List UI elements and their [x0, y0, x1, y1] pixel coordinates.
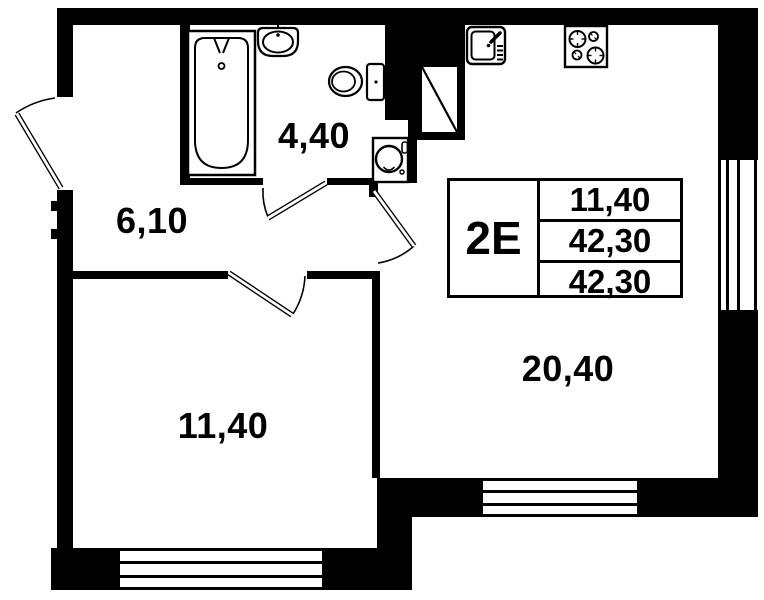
spec-value-row-2: 42,30	[540, 219, 680, 260]
wall-left-lower	[57, 190, 73, 548]
wall-left-upper	[57, 8, 73, 97]
bedroom-door-arc	[293, 276, 305, 314]
floor-plan: 4,40 6,10 11,40 20,40 2Е 11,40 42,30 42,…	[0, 0, 764, 600]
bedroom-window	[120, 548, 322, 590]
kitchen-sink	[467, 27, 505, 64]
washing-machine	[373, 138, 408, 182]
wall-vent-left	[417, 67, 422, 132]
wash-basin	[258, 21, 298, 56]
wall-vent-strip	[408, 25, 417, 183]
wall-right-upper	[718, 8, 758, 160]
wall-bathroom-bottom-right	[327, 178, 372, 185]
wall-notch-b	[51, 229, 57, 239]
wall-room-divider	[372, 271, 380, 478]
bathtub	[188, 31, 255, 175]
wall-notch-a	[51, 201, 57, 211]
wall-bathroom-right	[385, 25, 408, 120]
unit-type-label: 2Е	[450, 181, 540, 295]
stove	[565, 26, 607, 67]
ventilation-shaft	[422, 67, 457, 132]
unit-spec-values: 11,40 42,30 42,30	[540, 181, 680, 295]
area-label-bedroom: 11,40	[178, 405, 269, 447]
kitchen-side-window	[718, 160, 757, 310]
wall-bedroom-bottom-right	[322, 548, 412, 590]
area-label-bathroom: 4,40	[278, 115, 350, 157]
bathroom-door-arc	[263, 188, 268, 217]
area-label-living-kitchen: 20,40	[522, 348, 615, 390]
wall-vent-top	[417, 25, 465, 67]
wall-vent-right	[457, 67, 465, 132]
spec-value-row-3: 42,30	[540, 260, 680, 301]
entrance-door-arc	[16, 98, 55, 113]
toilet	[329, 64, 384, 100]
living-room-window	[483, 478, 637, 517]
entrance-door	[16, 98, 61, 188]
living-room-door	[374, 191, 414, 263]
living-room-door-arc	[378, 246, 414, 263]
wall-bathroom-bottom-left	[180, 178, 263, 185]
wall-top	[57, 8, 758, 25]
wall-bedroom-top-left	[66, 271, 228, 279]
bathroom-door	[263, 183, 326, 218]
wall-bedroom-top-right	[307, 271, 372, 279]
bedroom-door	[229, 273, 305, 315]
unit-spec-table: 2Е 11,40 42,30 42,30	[447, 178, 683, 298]
wall-bedroom-bottom-left	[51, 548, 120, 590]
wall-living-bottom-right	[637, 478, 758, 517]
area-label-hallway: 6,10	[116, 200, 188, 242]
wall-vent-bottom	[417, 132, 465, 140]
spec-value-row-1: 11,40	[540, 181, 680, 219]
